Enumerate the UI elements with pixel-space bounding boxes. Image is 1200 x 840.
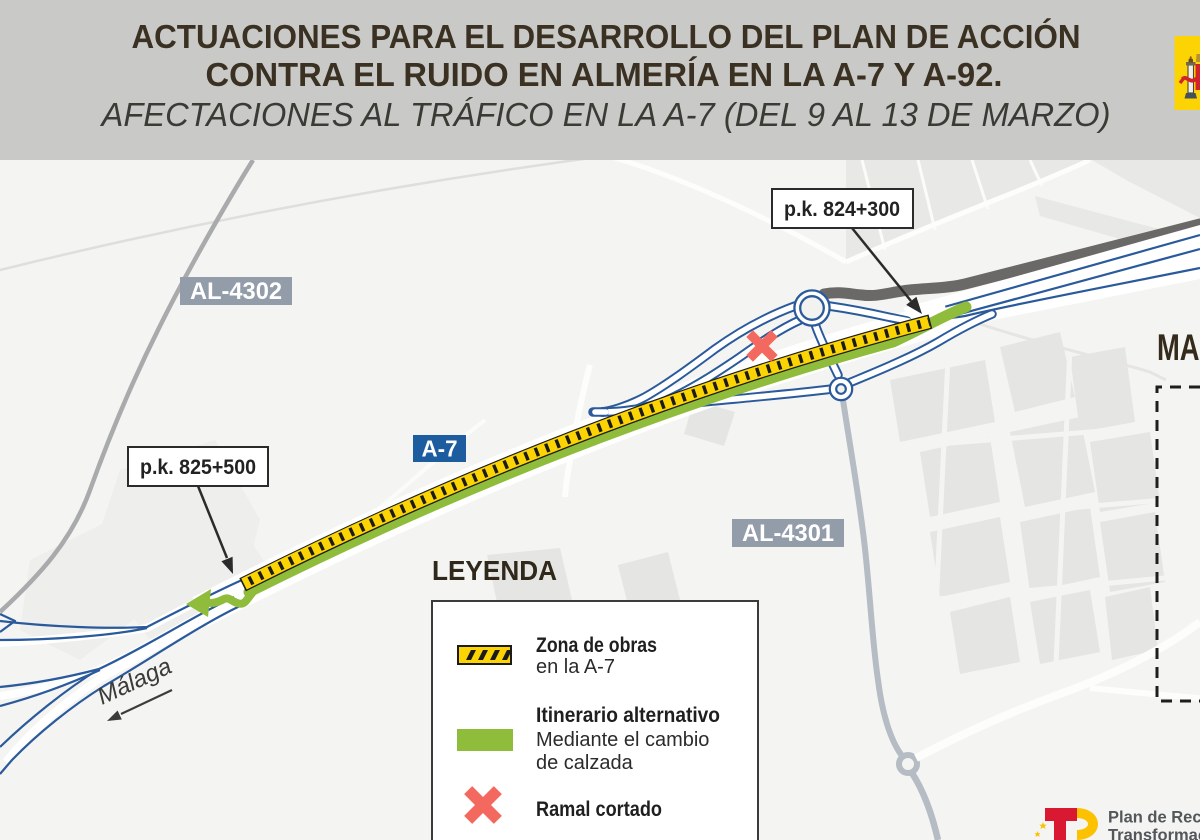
svg-text:Ramal cortado: Ramal cortado: [536, 798, 662, 821]
svg-text:CONTRA EL RUIDO EN ALMERÍA EN: CONTRA EL RUIDO EN ALMERÍA EN LA A-7 Y A…: [206, 56, 1003, 93]
svg-text:ACTUACIONES PARA EL DESARROLLO: ACTUACIONES PARA EL DESARROLLO DEL PLAN …: [132, 18, 1081, 55]
svg-text:Transformación y Resiliencia: Transformación y Resiliencia: [1108, 827, 1200, 840]
svg-text:Zona de obras: Zona de obras: [536, 634, 657, 657]
svg-text:Itinerario alternativo: Itinerario alternativo: [536, 704, 720, 727]
svg-text:LEYENDA: LEYENDA: [432, 555, 557, 586]
svg-text:p.k. 825+500: p.k. 825+500: [140, 456, 256, 479]
svg-text:Mediante el cambio: Mediante el cambio: [536, 729, 709, 751]
svg-text:AL-4302: AL-4302: [190, 278, 282, 305]
svg-text:p.k. 824+300: p.k. 824+300: [784, 198, 900, 221]
svg-text:de calzada: de calzada: [536, 752, 634, 774]
svg-text:AL-4301: AL-4301: [742, 520, 834, 547]
svg-text:A-7: A-7: [422, 436, 458, 462]
svg-text:Plan de Recuperación,: Plan de Recuperación,: [1108, 809, 1200, 827]
svg-text:en la A-7: en la A-7: [536, 656, 615, 678]
svg-text:MAPA DE SITUACIÓN: MAPA DE SITUACIÓN: [1157, 326, 1200, 368]
svg-text:AFECTACIONES AL TRÁFICO EN LA: AFECTACIONES AL TRÁFICO EN LA A-7 (DEL 9…: [100, 96, 1111, 133]
